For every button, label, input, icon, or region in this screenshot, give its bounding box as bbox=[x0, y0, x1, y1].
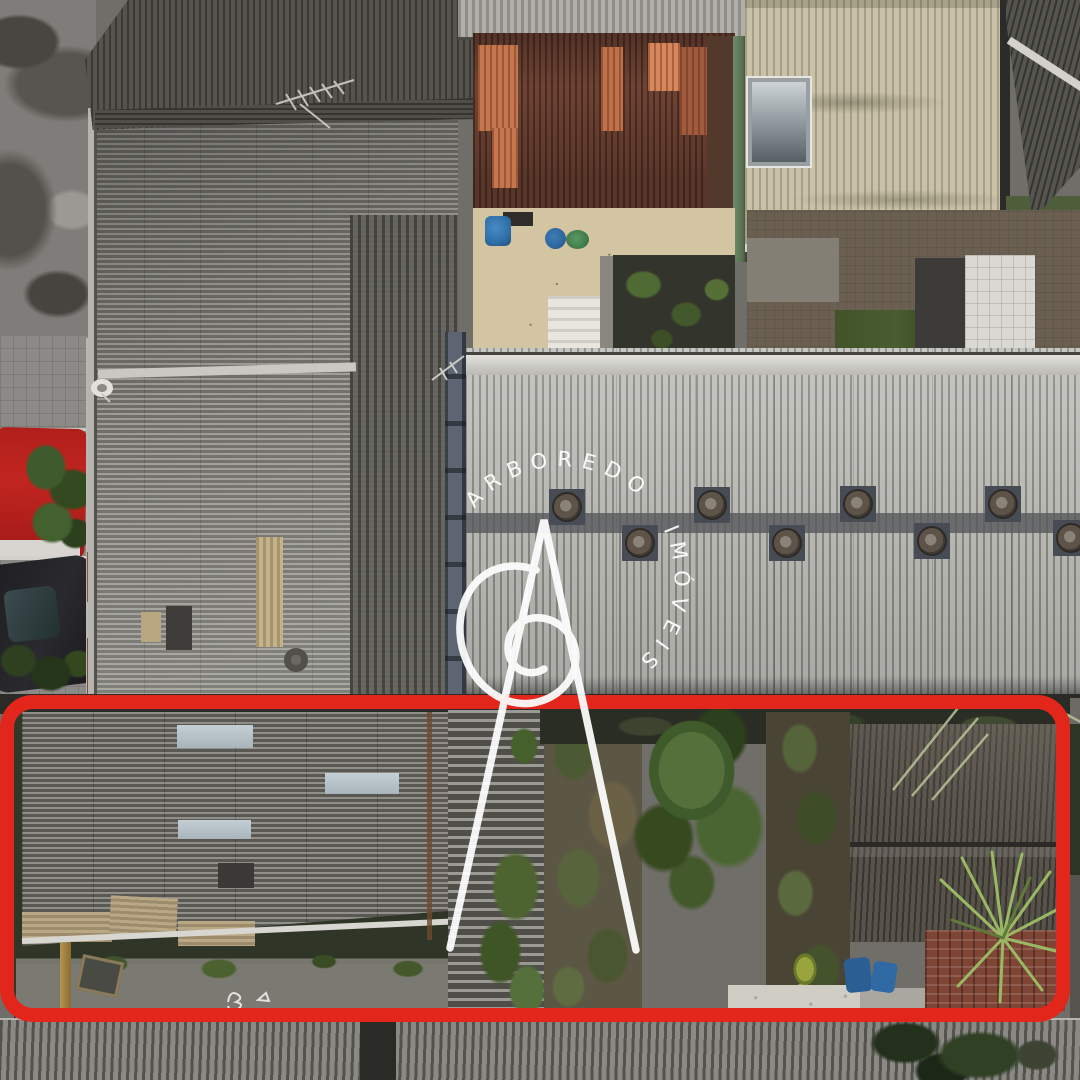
dark-wall bbox=[915, 258, 965, 352]
brown-pole bbox=[427, 712, 432, 940]
terracotta-roof-edge bbox=[707, 36, 733, 211]
barn-roof-seam-highlight bbox=[828, 847, 1068, 857]
lot-right-edge bbox=[1070, 698, 1080, 1020]
skylight-window bbox=[748, 78, 810, 166]
ivy-overgrowth bbox=[500, 722, 544, 782]
clay-tile-roof bbox=[925, 930, 1065, 1012]
roof-vent-fan-icon bbox=[843, 489, 873, 519]
garden-beds bbox=[613, 255, 735, 354]
roof-vent-fan-icon bbox=[552, 492, 582, 522]
translucent-roof-patch bbox=[325, 773, 399, 794]
aerial-photo: ARBOREDO IMÓVEIS bbox=[0, 0, 1080, 1080]
green-wall bbox=[733, 36, 747, 262]
courtyard-paving bbox=[747, 238, 839, 302]
gravel-ground bbox=[860, 988, 926, 1016]
roof-repair-patch bbox=[141, 612, 161, 642]
garden-wall bbox=[600, 256, 613, 354]
roof-gap-shadow bbox=[360, 1022, 396, 1080]
terracotta-patch bbox=[492, 128, 518, 188]
translucent-roof-patch bbox=[178, 820, 251, 839]
terracotta-patch bbox=[680, 47, 708, 135]
ivy-overgrowth bbox=[470, 830, 546, 1018]
foreground-foliage bbox=[1008, 1030, 1080, 1080]
terracotta-patch bbox=[601, 47, 623, 131]
blue-water-barrel bbox=[485, 216, 511, 246]
white-stair bbox=[548, 296, 602, 354]
blue-water-barrel bbox=[545, 228, 566, 249]
street-shrubs bbox=[0, 636, 92, 698]
seam-brackets bbox=[445, 332, 466, 698]
wooden-post bbox=[60, 940, 71, 1016]
roof-edge-flashing bbox=[88, 108, 97, 698]
roof-vent-fan-icon bbox=[697, 490, 727, 520]
roof-hatch bbox=[166, 606, 192, 650]
bushes-over-car bbox=[26, 440, 92, 550]
terracotta-patch bbox=[648, 43, 680, 91]
dark-roof-corner bbox=[1006, 0, 1080, 220]
roof-vent-fan-icon bbox=[988, 489, 1018, 519]
weathered-barn-roof bbox=[828, 724, 1068, 942]
roof-hatch bbox=[218, 863, 254, 888]
blue-barrel bbox=[843, 957, 872, 994]
roof-repair-patch bbox=[256, 537, 283, 647]
roof-vent bbox=[284, 648, 308, 672]
dark-car-windshield bbox=[3, 585, 61, 643]
blue-barrel bbox=[870, 960, 898, 993]
roof-vent-fan-icon bbox=[625, 528, 655, 558]
roof-vent-fan-icon bbox=[772, 528, 802, 558]
green-tub bbox=[566, 230, 589, 249]
left-warehouse-roof-right-slope bbox=[350, 215, 458, 698]
roof-ridge-flashing bbox=[458, 352, 1080, 375]
roof-vent-fan-icon bbox=[917, 526, 947, 556]
translucent-roof-patch bbox=[177, 725, 253, 748]
white-tiled-terrace bbox=[965, 255, 1035, 352]
gravel-path bbox=[728, 985, 866, 1017]
roof-vent-fan-icon bbox=[1056, 523, 1080, 553]
terracotta-patch bbox=[478, 45, 518, 131]
